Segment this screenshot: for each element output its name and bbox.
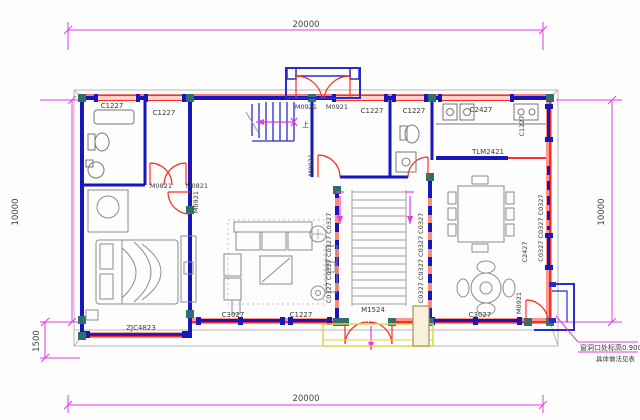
sliding-door-tlm2421 (436, 156, 546, 160)
label-c1227-2: C1227 (153, 109, 176, 117)
label-c1227-4: C1227 (403, 107, 426, 115)
bathroom-fixtures-left (86, 110, 134, 178)
note-line1: 窗洞口处标高0.900 (580, 343, 640, 352)
entry-stair (246, 102, 297, 141)
label-c0327-left: C0327 C0327 C0327 C0327 (325, 213, 333, 304)
outer-walls (82, 95, 550, 340)
living-room-furniture (224, 220, 337, 304)
label-c1227-right: C1227 (518, 115, 526, 136)
label-m0821-3: M0821 (307, 154, 315, 176)
label-m0921-4: M0921 (515, 292, 523, 314)
label-c2427-top: C2427 (470, 106, 493, 114)
label-c3027-1: C3027 (222, 311, 245, 319)
label-zjc4823: ZJC4823 (126, 324, 156, 332)
dim-left-label: 10000 (11, 198, 21, 225)
label-m0921-3: M0921 (192, 191, 200, 213)
label-c3027-2: C3027 (469, 311, 492, 319)
bedroom-furniture (86, 190, 240, 320)
label-m0921-1: M0921 (295, 103, 317, 111)
label-c1227-1: C1227 (101, 102, 124, 110)
label-c2427-right: C2427 (521, 241, 529, 262)
floor-plan-canvas: 20000 20000 10000 10000 1500 (0, 0, 640, 420)
eave-outline (74, 90, 558, 346)
label-c0327-outer: C0327 C0327 C0327 (537, 194, 545, 261)
main-stair (352, 190, 406, 306)
label-tlm2421: TLM2421 (471, 148, 504, 156)
floor-plan-drawing: 20000 20000 10000 10000 1500 (0, 0, 640, 420)
interior-walls (82, 98, 432, 336)
label-c1227-5: C1227 (290, 311, 313, 319)
label-m0821-2: M0821 (186, 182, 208, 190)
dim-offset-label: 1500 (32, 330, 42, 352)
label-m0921-2: M0921 (326, 103, 348, 111)
dim-right-label: 10000 (597, 198, 607, 225)
entry-porch (286, 68, 360, 98)
stair-up-label: 上 (302, 120, 309, 129)
label-c0327-right: C0327 C0327 C0327 C0327 (417, 213, 425, 304)
dim-bottom-label: 20000 (292, 394, 319, 404)
right-wall-windows (545, 104, 553, 270)
bathroom-fixtures-right (396, 125, 419, 172)
label-m0821-1: M0821 (150, 182, 172, 190)
dining-furniture (448, 176, 515, 315)
note-line2: 具体做法见表 (596, 354, 636, 363)
label-c1227-3: C1227 (361, 107, 384, 115)
label-m1524: M1524 (361, 306, 385, 314)
dim-top-label: 20000 (292, 20, 319, 30)
